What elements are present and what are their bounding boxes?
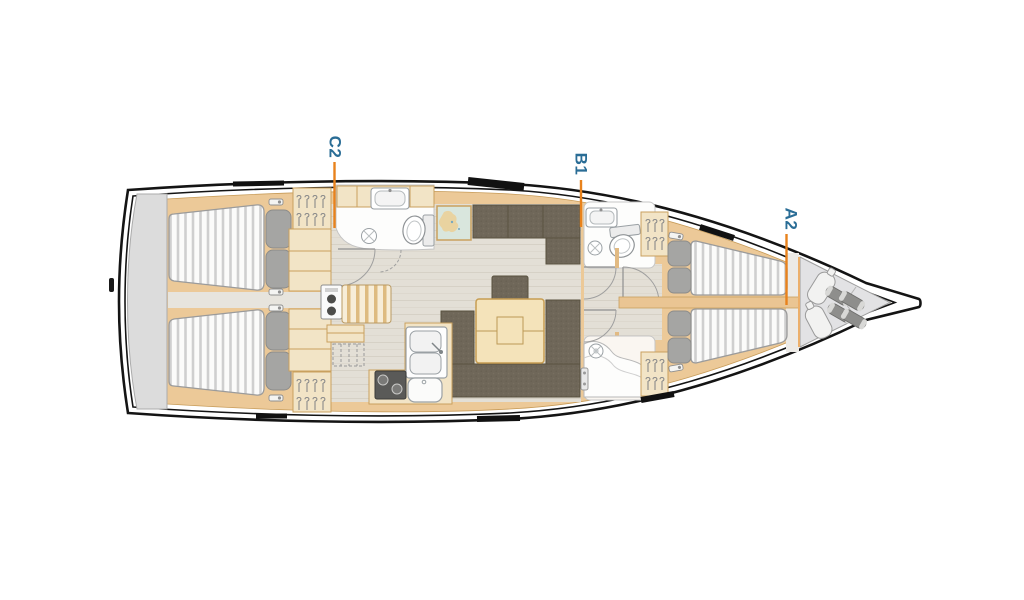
pillow [266, 312, 291, 350]
salon-table [476, 299, 544, 363]
pillow [668, 338, 691, 363]
reading-lamp-icon [269, 289, 283, 295]
shower-drain-icon [362, 229, 377, 244]
faucet-base [439, 350, 443, 354]
u-sofa-bottom [441, 364, 580, 397]
nav-seat [342, 285, 391, 323]
pillow [266, 352, 291, 390]
shower-drain-icon [589, 344, 603, 358]
label-a2: A2 [782, 208, 801, 231]
pillow [266, 210, 291, 248]
sink-icon [586, 208, 617, 227]
pillow [668, 241, 691, 266]
u-sofa-right-arm [546, 300, 580, 364]
pillow [668, 311, 691, 336]
map-dot [451, 221, 453, 223]
hatch-mark [477, 418, 520, 419]
stove-icon [375, 371, 406, 399]
aft-cabin-port [169, 199, 291, 295]
pillow [668, 268, 691, 293]
sofa-forward-bench [473, 205, 580, 238]
reading-lamp-icon [269, 305, 283, 311]
sofa-corner-extension [546, 238, 580, 264]
cabinet-stack [289, 229, 331, 291]
aft-cabin-starboard [169, 305, 291, 401]
reading-lamp-icon [269, 199, 283, 205]
transom-fitting [109, 278, 114, 292]
berth-center-divider [619, 297, 799, 308]
shower-drain-icon [588, 241, 602, 255]
hatch-mark [233, 183, 284, 184]
instrument-box-icon [321, 285, 342, 319]
galley-sink-unit [406, 327, 447, 378]
aft-corridor-floor [168, 292, 334, 308]
wardrobe-aft-port [293, 188, 331, 229]
sink-basin [410, 331, 441, 352]
reading-lamp-icon [269, 395, 283, 401]
label-b1: B1 [572, 153, 591, 176]
wardrobe-aft-starboard [293, 372, 331, 412]
sink-icon [371, 188, 409, 209]
sink-basin [410, 353, 441, 374]
shower-column-icon [581, 368, 588, 390]
label-c2: C2 [326, 136, 345, 159]
chart-map [437, 206, 471, 240]
berth-mattress [169, 205, 264, 290]
wardrobe-forward-starboard [641, 352, 668, 396]
yacht-deck-plan: C2 B1 A2 [0, 0, 1024, 600]
berth-mattress [169, 310, 264, 395]
map-dot [458, 228, 460, 230]
salon-stool [492, 276, 528, 301]
wardrobe-forward-port [641, 212, 668, 256]
swim-platform [128, 194, 168, 409]
fridge-icon [408, 378, 442, 402]
doorway-wall [615, 248, 619, 268]
deck-plan-canvas: C2 B1 A2 [0, 0, 1024, 600]
pillow [266, 250, 291, 288]
